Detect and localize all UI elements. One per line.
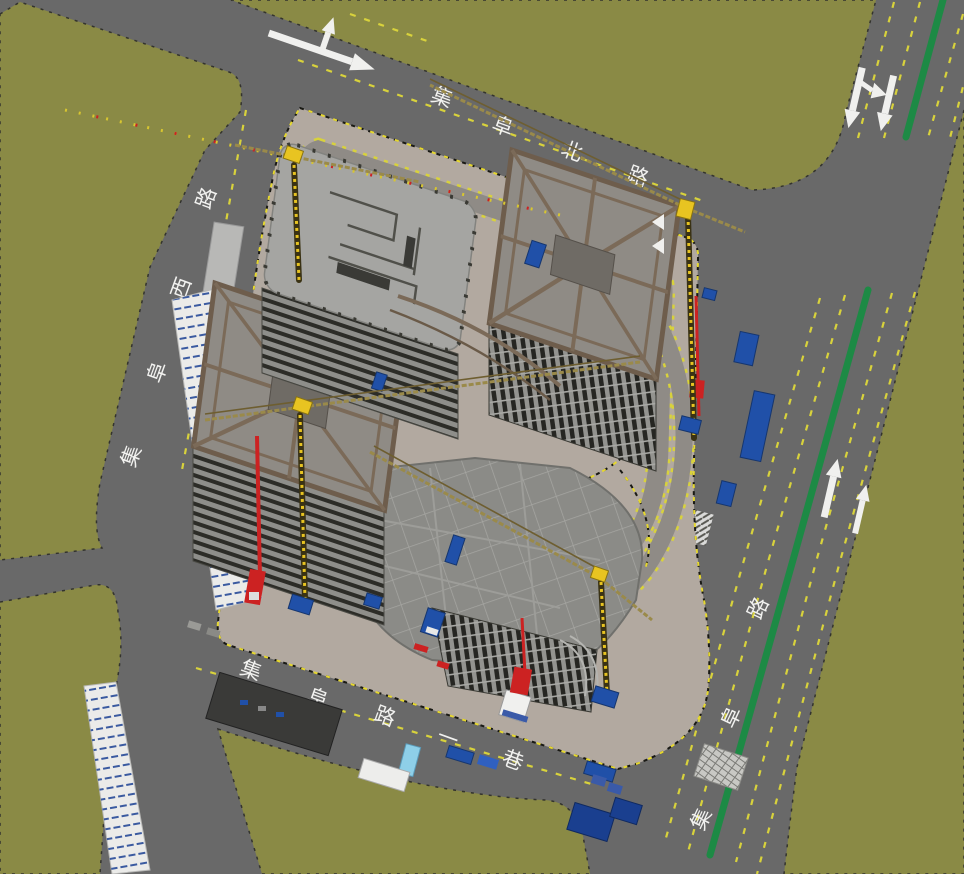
car [240, 700, 248, 705]
car [258, 706, 266, 711]
northeast-tower [489, 150, 679, 471]
hoist-cage [249, 592, 259, 600]
car [276, 712, 284, 717]
site-3d-viewport[interactable]: 集 阜 北 路 路 西 阜 集 路 阜 集 集 阜 路 一 巷 [0, 0, 964, 874]
scene-canvas[interactable]: 集 阜 北 路 路 西 阜 集 路 阜 集 集 阜 路 一 巷 [0, 0, 964, 874]
